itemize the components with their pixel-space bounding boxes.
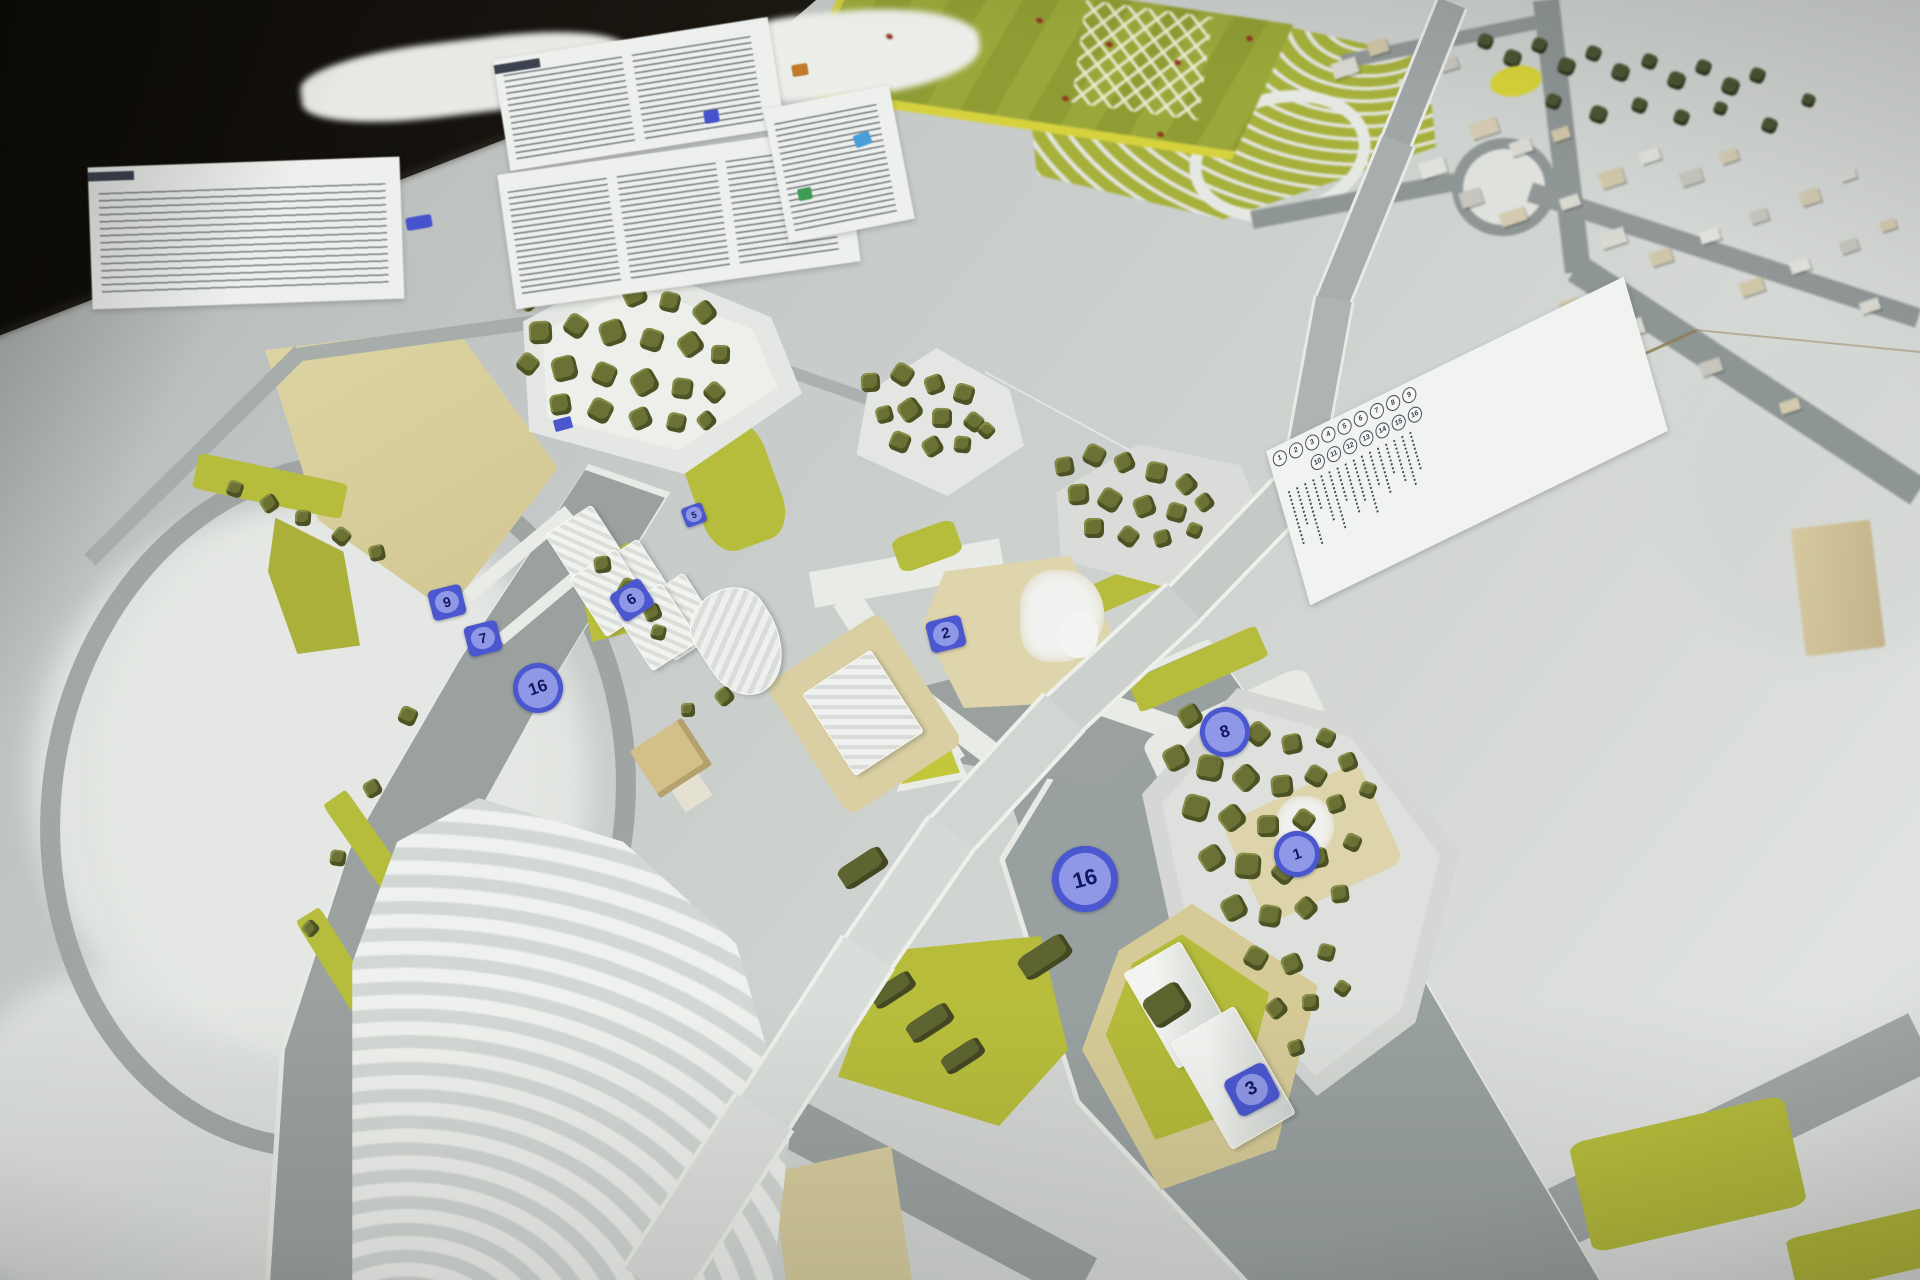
paper-text-rows <box>99 183 389 297</box>
legend-circled-number: 9 <box>1400 385 1418 406</box>
legend-sheet-d <box>88 157 405 310</box>
legend-text-line <box>1288 491 1305 545</box>
paper-text-column <box>632 36 764 140</box>
legend-circled-number: 6 <box>1352 408 1370 429</box>
blue-tag-paper-d <box>405 214 433 231</box>
orange-tag-paper-a <box>791 63 809 77</box>
blue-tag-paper-b <box>703 109 720 124</box>
paper-text-column <box>508 178 622 295</box>
legend-circled-number: 8 <box>1384 392 1402 413</box>
paper-text-column <box>774 104 897 232</box>
legend-text-line <box>1385 443 1395 473</box>
legend-circled-number: 1 <box>1271 448 1289 469</box>
legend-circled-number: 3 <box>1303 432 1321 453</box>
architectural-model-photo: 971665281163 12345678910111213141516 <box>0 0 1920 1280</box>
legend-circled-number: 2 <box>1287 440 1305 461</box>
legend-papers <box>0 0 1920 1280</box>
legend-sheet-c <box>763 85 915 243</box>
legend-circled-number: 4 <box>1320 424 1338 445</box>
legend-text-line <box>1361 455 1380 514</box>
legend-text-line <box>1304 483 1323 544</box>
paper-text-column <box>617 162 731 279</box>
legend-text-line <box>1312 479 1322 509</box>
legend-circled-number: 5 <box>1336 416 1354 437</box>
paper-text-column <box>503 56 635 160</box>
legend-circled-number: 7 <box>1368 400 1386 421</box>
paper-title <box>88 171 134 182</box>
legend-text-line <box>1328 471 1346 528</box>
